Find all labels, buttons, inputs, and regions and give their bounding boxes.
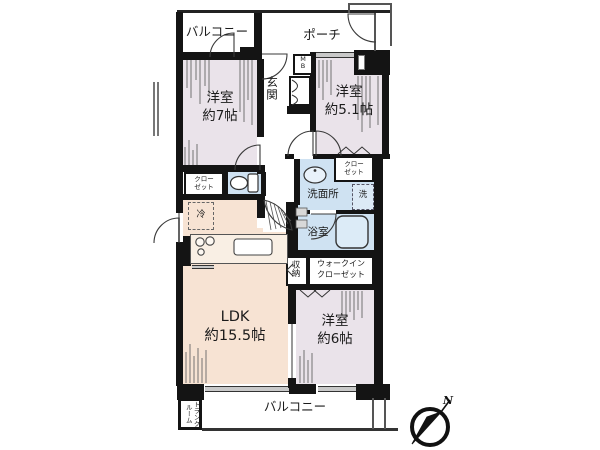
bedroom7-label: 洋室 約7帖 <box>183 90 257 125</box>
porch-box-left <box>348 3 350 13</box>
porch-label: ポーチ <box>270 27 374 43</box>
bedroom6-label: 洋室 約6帖 <box>296 313 374 348</box>
porch-door-frame <box>374 13 376 51</box>
washroom-label: 洗面所 <box>299 188 347 202</box>
pillar-vent-slot <box>358 55 365 70</box>
genkan-label: 玄関 <box>264 76 279 101</box>
exterior-line-2 <box>157 82 159 136</box>
window-porch <box>312 52 354 58</box>
balcony-bottom-edge <box>202 428 398 431</box>
washer-label: 洗 <box>352 190 374 201</box>
bedroom51-label: 洋室 約5.1帖 <box>312 84 386 119</box>
balcony-rail-line-1 <box>372 398 374 429</box>
balcony-top-label: バルコニー <box>177 24 257 40</box>
shuno-label: 収納 <box>289 260 300 277</box>
kitchen-counter <box>190 234 288 264</box>
bathroom-label: 浴室 <box>300 226 336 240</box>
compass-north-label: N <box>442 394 454 407</box>
porch-box-right <box>390 3 392 46</box>
wall-top-line <box>177 10 390 13</box>
wall-toilet-left <box>224 172 228 196</box>
walk-in-closet-label: ウォークイン クローゼット <box>308 259 374 281</box>
closet-bedroom51-label: クロー ゼット <box>334 160 374 176</box>
wall-washroom-top-stub <box>285 154 294 159</box>
compass-needle <box>412 412 441 444</box>
refrigerator-label: 冷 <box>188 210 214 222</box>
meter-box-label: M B <box>293 56 313 71</box>
wall-bedroom7-bottom <box>177 165 265 172</box>
shoe-cabinet <box>289 76 311 106</box>
trunk-room-label: トランク ルーム <box>181 401 199 427</box>
window-ldk-south <box>205 386 289 392</box>
compass-icon: N <box>412 394 454 445</box>
wall-wash-bath-b <box>336 210 374 214</box>
door-ldk-service <box>154 218 179 243</box>
wall-genkan-step-stub <box>287 106 311 114</box>
wall-left-doorline <box>178 213 180 242</box>
balcony-bottom-label: バルコニー <box>240 399 350 415</box>
wall-balcony-bottom <box>183 52 257 60</box>
wall-toilet-right <box>261 172 266 196</box>
wall-ldk-bedroom6-line <box>291 324 293 382</box>
wall-hall-stub <box>257 194 265 218</box>
wall-ldk-bedroom6-a <box>288 290 296 324</box>
balcony-rail-line-2 <box>384 398 386 429</box>
wall-right-wet-zone <box>374 154 383 386</box>
wall-block-bottom-mid <box>289 384 316 394</box>
wall-left-lower <box>176 242 183 386</box>
wall-left-upper <box>176 12 183 213</box>
kitchen-counter-sill <box>192 265 214 269</box>
wall-bedroom7-right-a <box>257 59 264 137</box>
porch-box-top <box>348 3 392 5</box>
exterior-line-1 <box>153 82 155 136</box>
floor-plan: N バルコニー ポーチ 玄関 M B 洋室 約7帖 洋室 約5.1帖 洋室 約6… <box>0 0 600 450</box>
wall-wash-bath-a <box>298 210 310 214</box>
ldk-label: LDK 約15.5帖 <box>183 308 287 346</box>
closet-bedroom7-label: クロー ゼット <box>184 175 224 191</box>
